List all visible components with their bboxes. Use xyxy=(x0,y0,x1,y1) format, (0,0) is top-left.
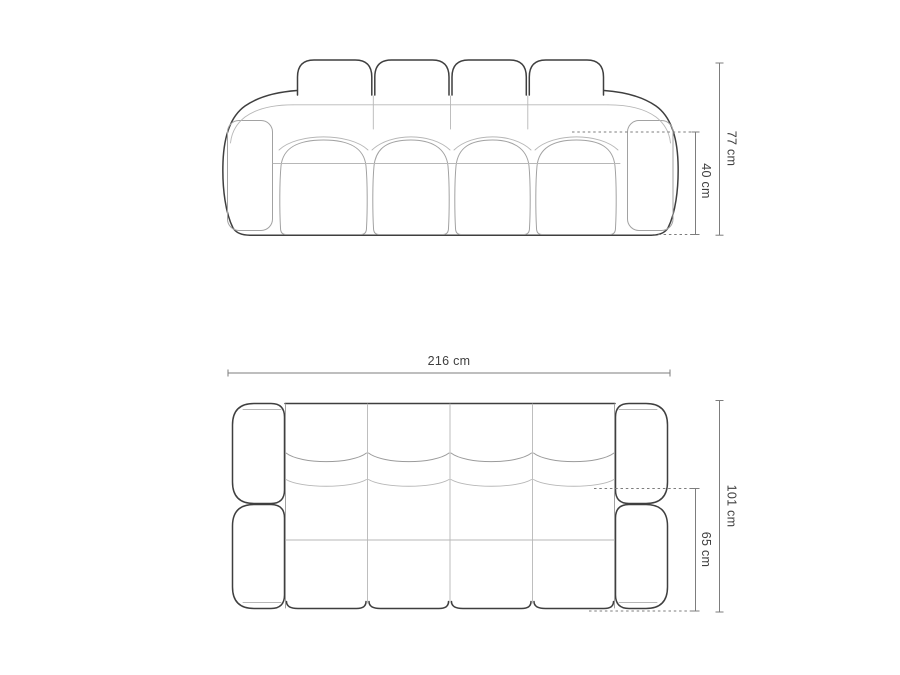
seat-cushion xyxy=(373,140,449,235)
seat-cushion xyxy=(536,140,616,235)
back-cushion-front-arc xyxy=(451,453,532,462)
top-overall-depth-dimension: 101 cm xyxy=(716,401,739,613)
front-seat-height-dimension: 40 cm xyxy=(572,132,713,235)
back-cushion-arc xyxy=(279,137,368,150)
overall-height-label: 77 cm xyxy=(725,131,739,167)
spec-drawing: 40 cm 77 cm 216 cm xyxy=(0,0,900,675)
left-armrest-top-section xyxy=(233,404,285,504)
seat-cushion-back-arc xyxy=(451,480,532,487)
front-view: 40 cm 77 cm xyxy=(223,60,739,235)
right-armrest-outline xyxy=(604,91,678,236)
seat-cushion xyxy=(280,140,367,235)
seat-cushion-back-arc xyxy=(534,480,615,487)
headrest-cushion xyxy=(375,60,449,95)
headrest-cushion xyxy=(529,60,603,95)
right-armrest-panel xyxy=(628,121,674,231)
right-armrest-bottom-section xyxy=(616,505,668,609)
overall-depth-label: 101 cm xyxy=(725,485,739,528)
seat-cushion-back-arc xyxy=(286,480,367,487)
top-view: 216 cm xyxy=(228,354,739,612)
top-sofa-drawing xyxy=(233,404,668,609)
back-cushion-front-arc xyxy=(286,453,367,462)
body-front-edge xyxy=(369,602,449,609)
seat-depth-label: 65 cm xyxy=(699,532,713,568)
body-front-edge xyxy=(287,602,367,609)
seat-cushion-back-arc xyxy=(369,480,450,487)
left-armrest-outline xyxy=(223,91,297,236)
body-front-edge xyxy=(452,602,532,609)
headrest-cushion xyxy=(298,60,372,95)
seat-cushion xyxy=(455,140,530,235)
front-sofa-drawing xyxy=(223,60,678,235)
top-seat-depth-dimension: 65 cm xyxy=(589,489,713,612)
headrest-cushion xyxy=(452,60,526,95)
overall-width-label: 216 cm xyxy=(428,354,471,368)
back-cushion-front-arc xyxy=(534,453,615,462)
body-front-edge xyxy=(534,602,614,609)
sofa-dimension-spec-sheet: 40 cm 77 cm 216 cm xyxy=(0,0,900,675)
left-armrest-bottom-section xyxy=(233,505,285,609)
top-overall-width-dimension: 216 cm xyxy=(228,354,670,377)
front-overall-height-dimension: 77 cm xyxy=(716,63,739,235)
left-armrest-panel xyxy=(228,121,273,231)
back-cushion-front-arc xyxy=(369,453,450,462)
seat-height-label: 40 cm xyxy=(699,163,713,199)
